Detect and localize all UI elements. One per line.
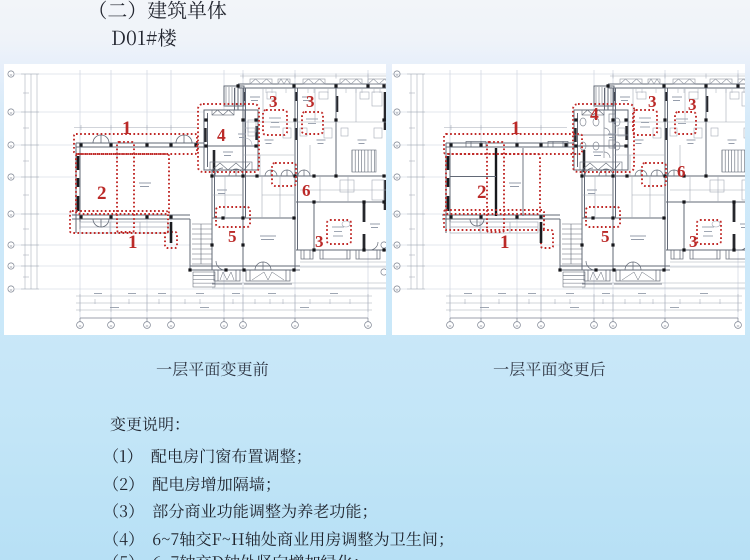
svg-text:6: 6 bbox=[677, 162, 686, 181]
svg-text:3: 3 bbox=[269, 92, 278, 111]
svg-text:1: 1 bbox=[511, 118, 521, 139]
svg-text:3: 3 bbox=[306, 92, 315, 111]
svg-text:1: 1 bbox=[500, 232, 510, 253]
svg-text:5: 5 bbox=[228, 227, 237, 246]
svg-text:3: 3 bbox=[689, 232, 698, 251]
svg-text:4: 4 bbox=[590, 104, 599, 124]
svg-text:4: 4 bbox=[217, 125, 226, 145]
svg-text:1: 1 bbox=[128, 232, 138, 253]
svg-text:3: 3 bbox=[648, 92, 657, 111]
svg-text:3: 3 bbox=[315, 232, 324, 251]
svg-text:1: 1 bbox=[122, 118, 132, 139]
svg-text:5: 5 bbox=[601, 227, 610, 246]
svg-text:3: 3 bbox=[688, 95, 697, 114]
svg-text:2: 2 bbox=[477, 182, 487, 203]
svg-text:6: 6 bbox=[302, 181, 311, 200]
svg-text:2: 2 bbox=[97, 183, 107, 204]
